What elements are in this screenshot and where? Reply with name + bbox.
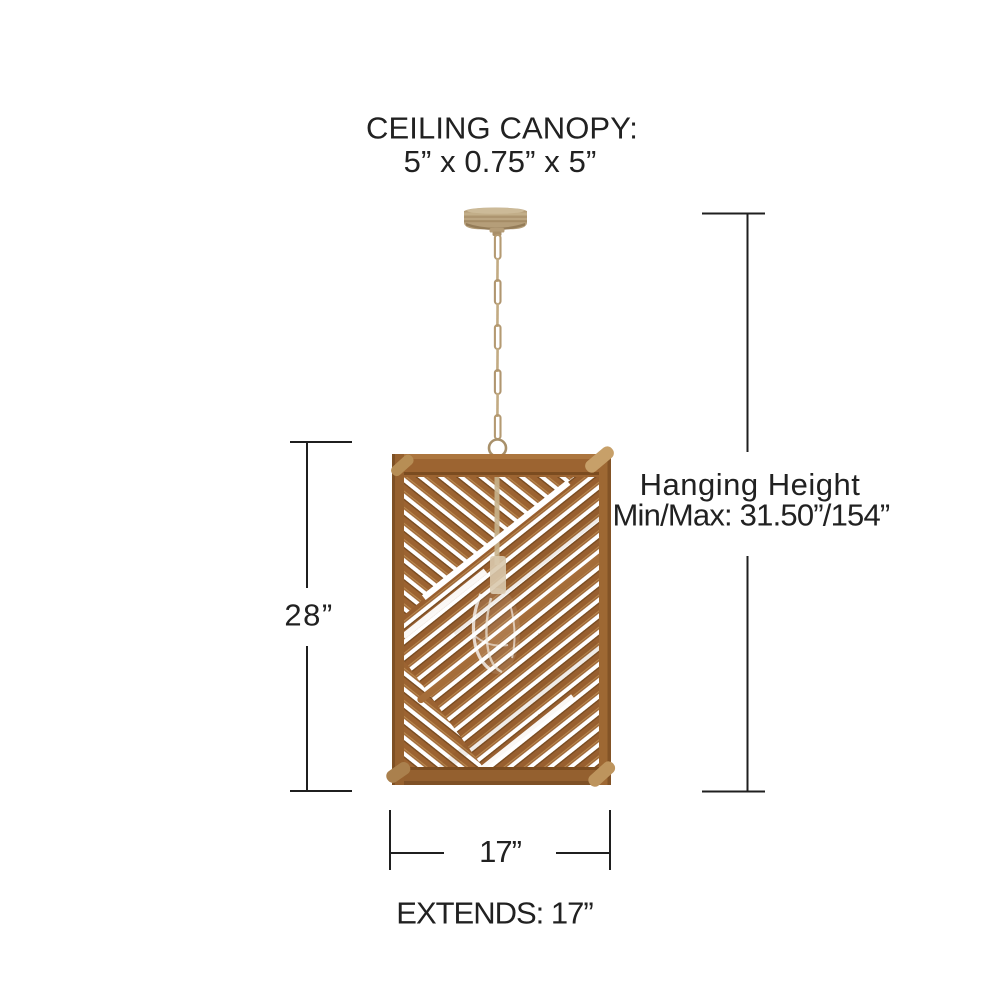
svg-text:EXTENDS: 17”: EXTENDS: 17” (396, 896, 593, 931)
svg-text:CEILING CANOPY:: CEILING CANOPY: (366, 111, 638, 146)
svg-text:Min/Max: 31.50”/154”: Min/Max: 31.50”/154” (613, 498, 890, 533)
svg-text:17”: 17” (479, 834, 521, 869)
svg-text:5” x 0.75” x 5”: 5” x 0.75” x 5” (404, 144, 597, 179)
svg-text:28”: 28” (284, 598, 333, 633)
